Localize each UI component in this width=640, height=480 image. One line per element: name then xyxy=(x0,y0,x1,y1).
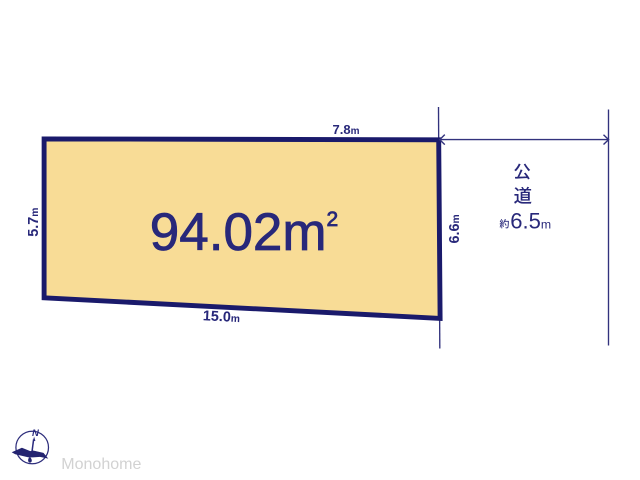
svg-text:94.02m2: 94.02m2 xyxy=(150,203,338,262)
svg-text:N: N xyxy=(32,428,40,439)
svg-text:Monohome: Monohome xyxy=(61,456,141,473)
